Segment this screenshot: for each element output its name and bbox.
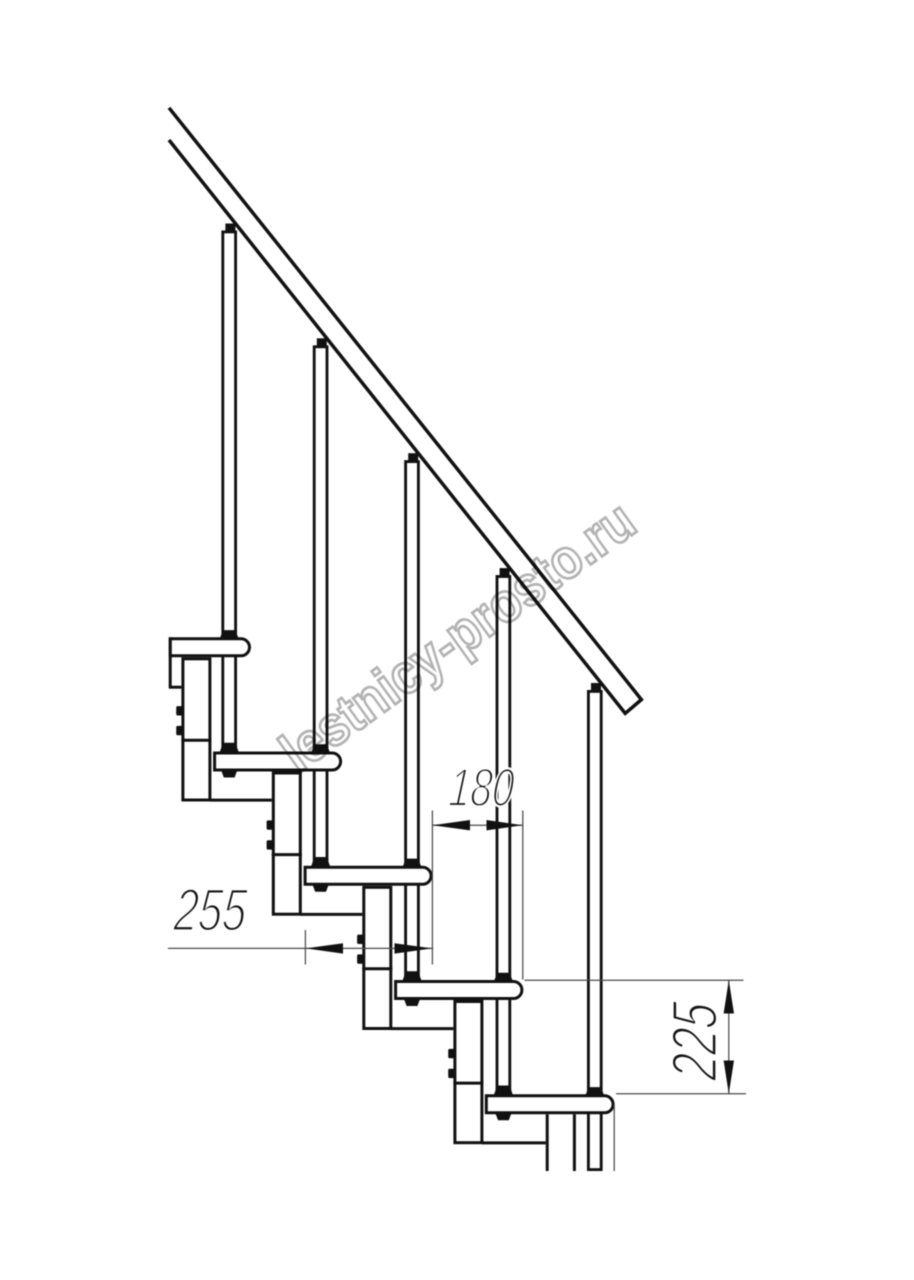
svg-text:lestnicy-prosto.ru: lestnicy-prosto.ru [268, 488, 646, 784]
